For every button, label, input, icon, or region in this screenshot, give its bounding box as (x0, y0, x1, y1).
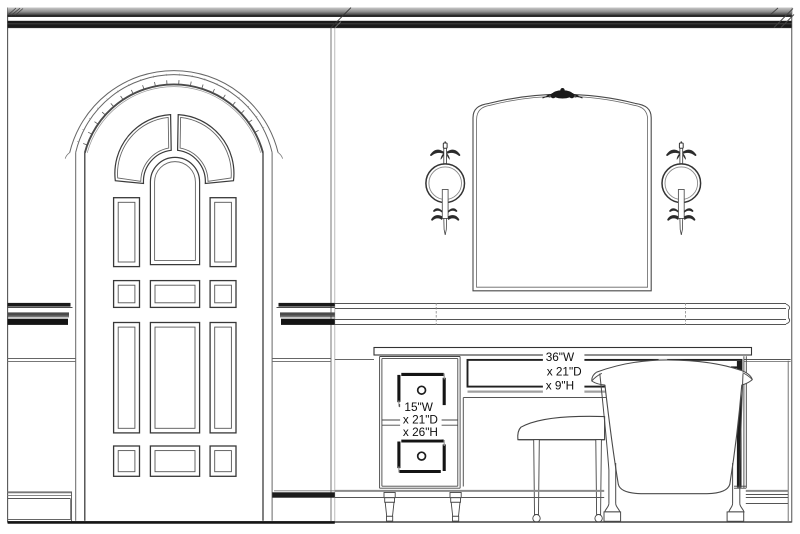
svg-text:x 21"D: x 21"D (547, 365, 582, 379)
svg-text:x 9"H: x 9"H (546, 379, 574, 393)
svg-text:36"W: 36"W (546, 350, 575, 364)
svg-text:x 26"H: x 26"H (403, 425, 438, 439)
